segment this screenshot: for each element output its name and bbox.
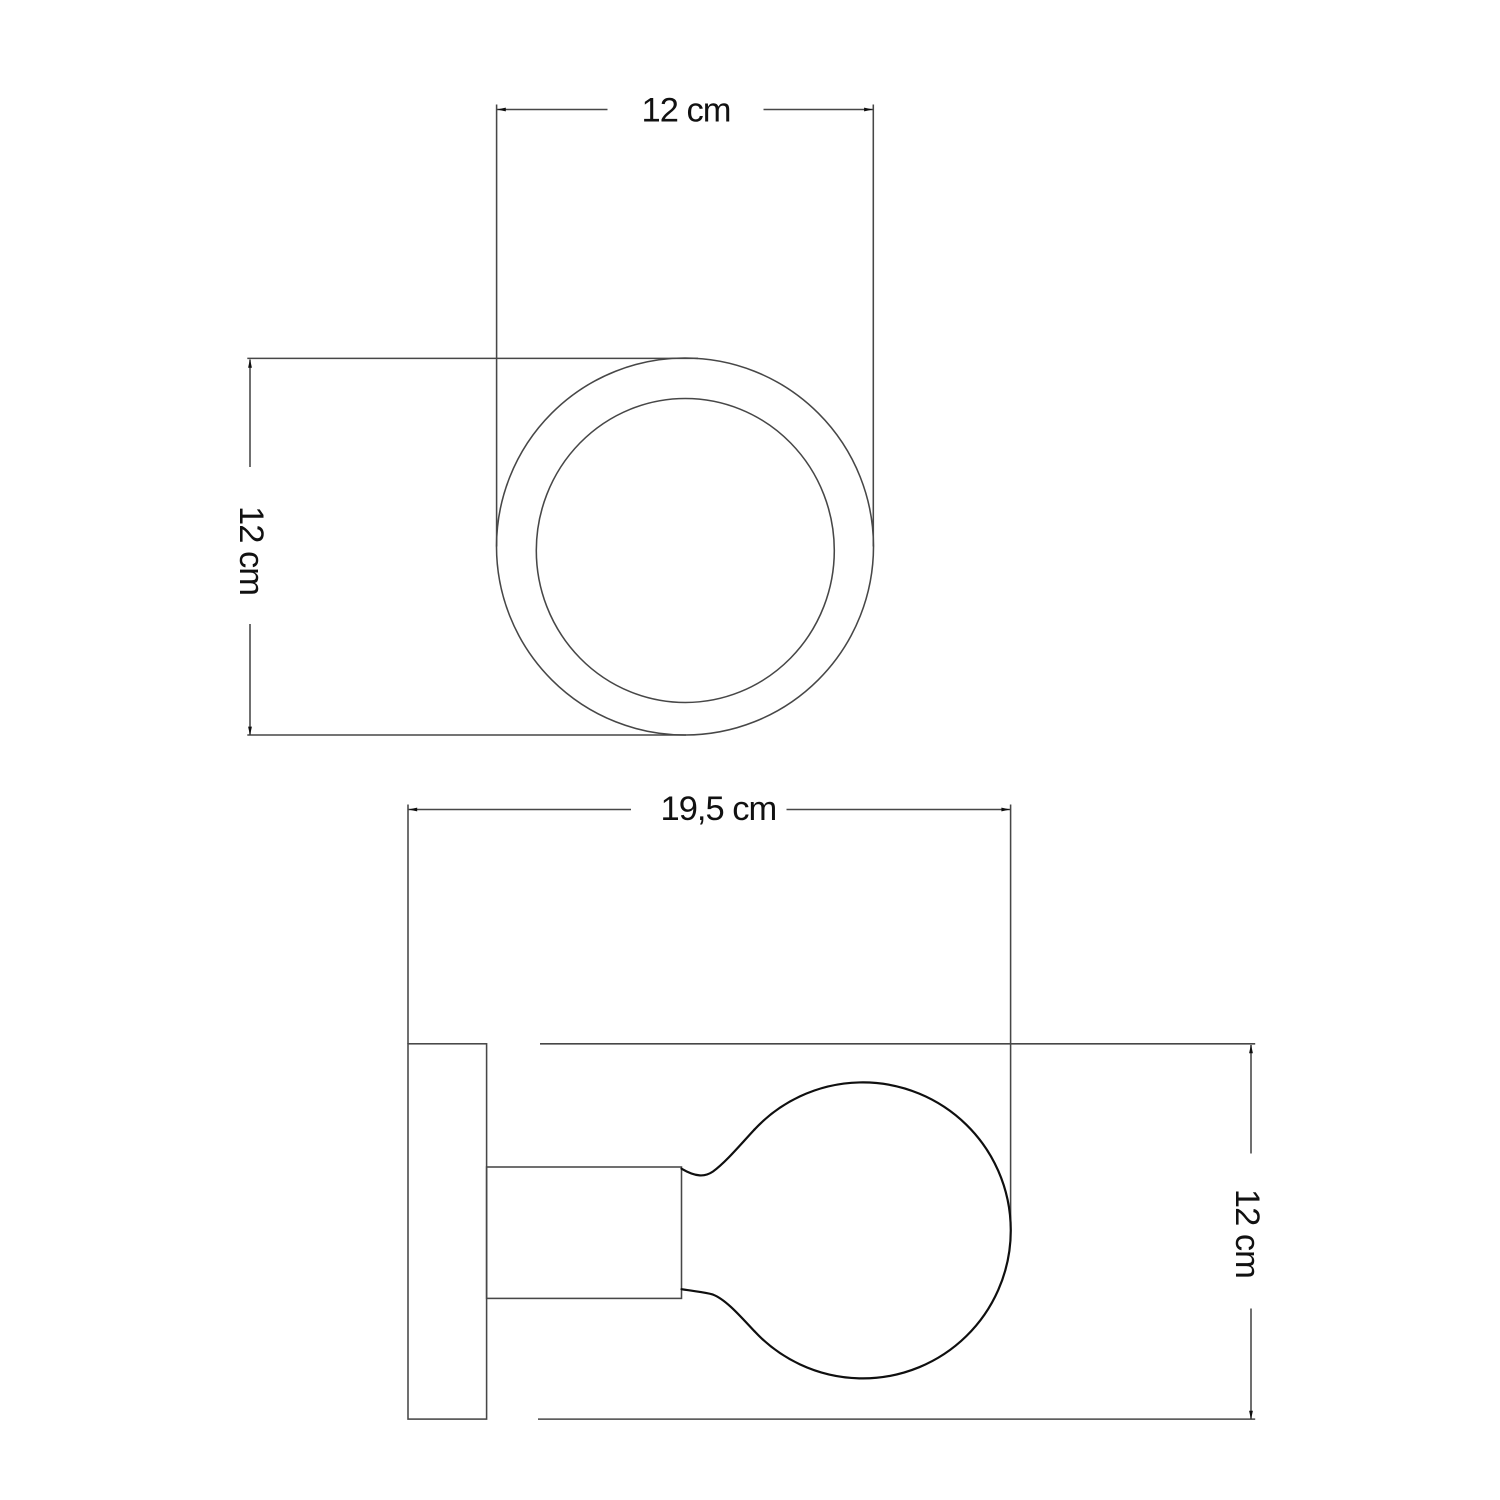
svg-text:19,5 cm: 19,5 cm: [661, 790, 777, 828]
svg-text:12 cm: 12 cm: [1228, 1189, 1266, 1278]
svg-text:12 cm: 12 cm: [232, 506, 270, 595]
svg-text:12 cm: 12 cm: [642, 92, 731, 130]
